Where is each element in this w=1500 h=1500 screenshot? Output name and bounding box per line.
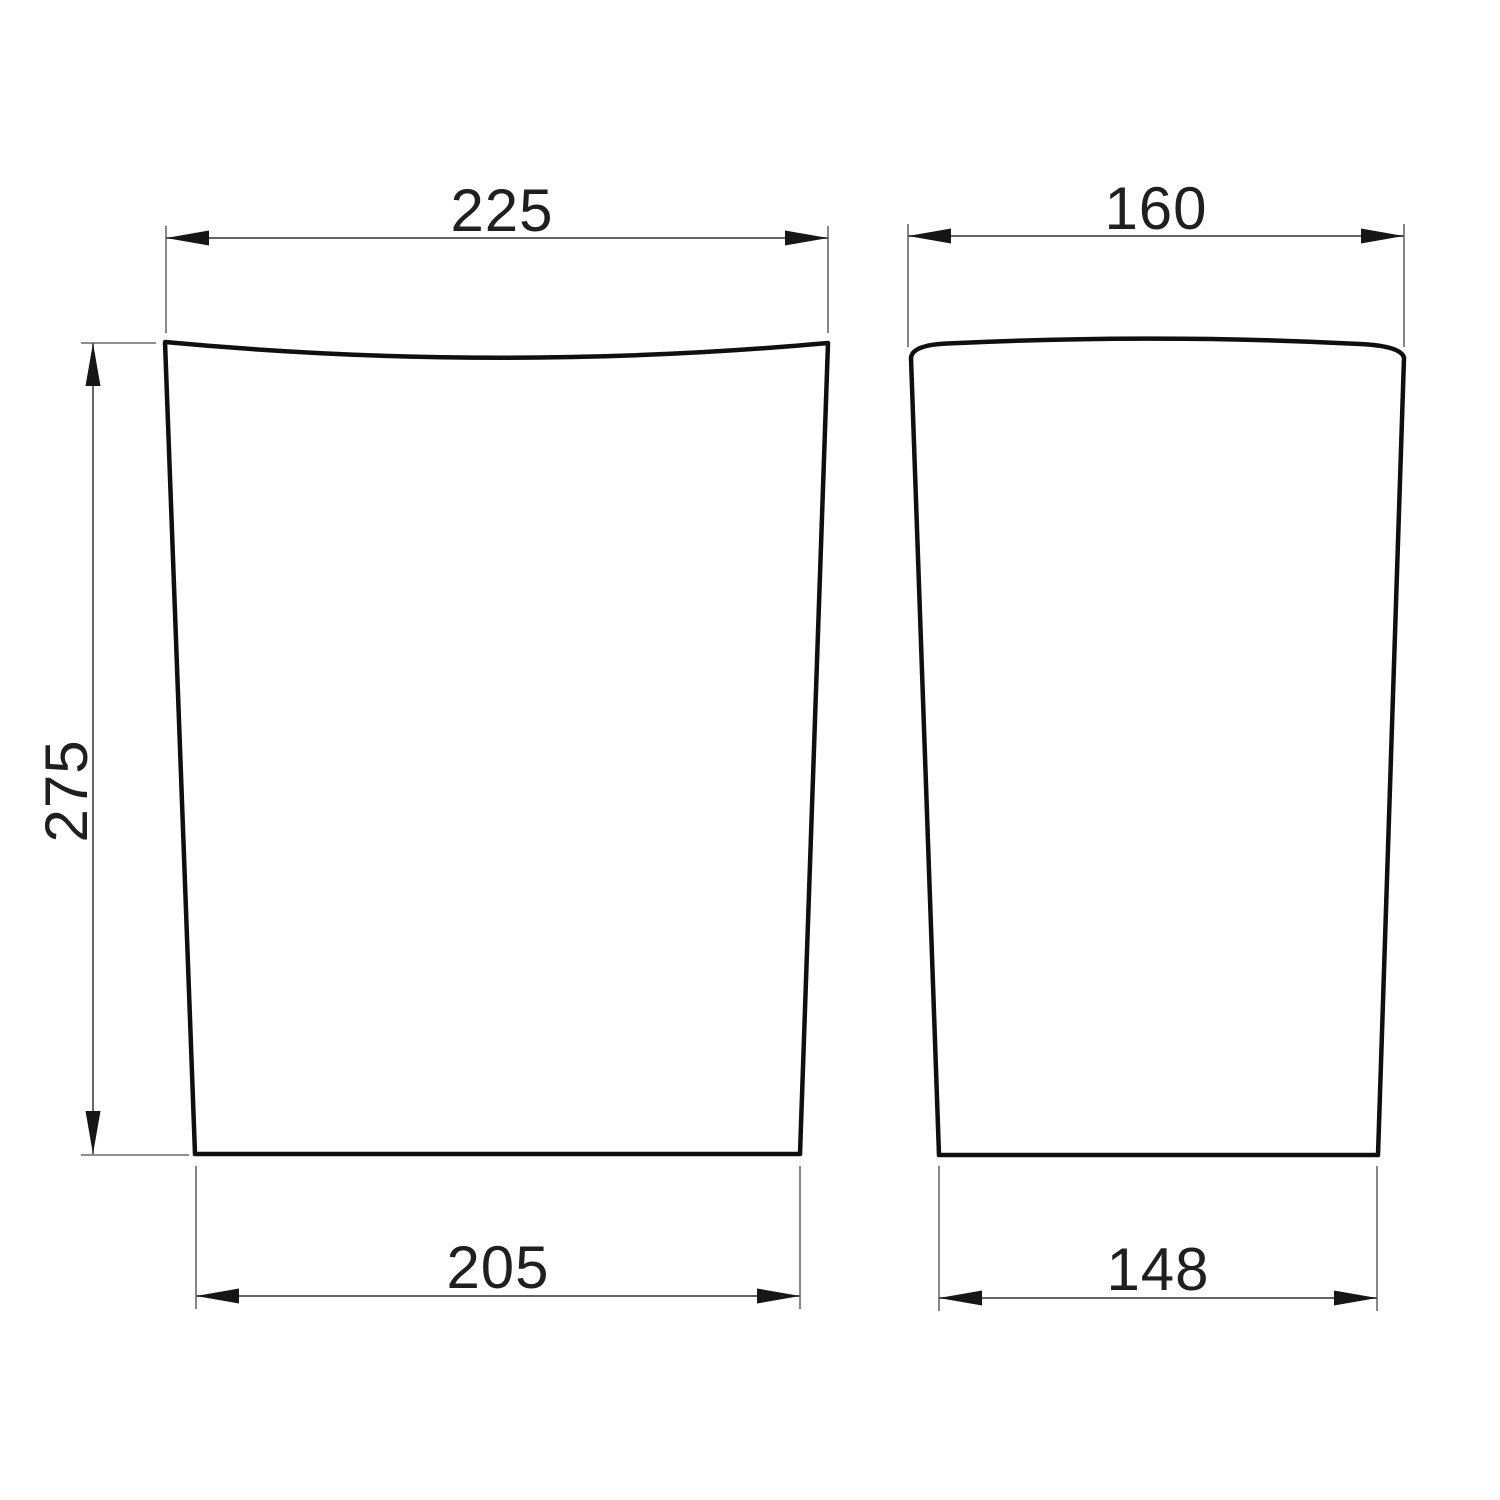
side-view-outline [911,339,1404,1155]
drawing-page: 225 160 275 205 [0,0,1500,1500]
side-top-width-value: 160 [1104,175,1207,242]
arrowhead-left [939,1291,982,1306]
side-view [911,339,1404,1155]
arrowhead-right [785,231,828,246]
arrowhead-right [757,1289,800,1304]
technical-drawing-canvas: 225 160 275 205 [0,0,1500,1500]
front-view [165,342,828,1154]
dim-front-top-width: 225 [166,177,828,333]
arrowhead-bottom [86,1111,101,1154]
dim-front-bottom-width: 205 [196,1166,800,1309]
arrowhead-left [908,229,951,244]
front-top-width-value: 225 [450,177,553,244]
arrowhead-left [166,231,209,246]
front-bottom-width-value: 205 [446,1234,549,1301]
arrowhead-left [196,1289,239,1304]
dim-side-bottom-width: 148 [939,1166,1377,1311]
arrowhead-right [1334,1291,1377,1306]
dim-front-height: 275 [33,343,189,1155]
side-bottom-width-value: 148 [1106,1236,1209,1303]
arrowhead-top [86,343,101,386]
front-view-outline [165,342,828,1154]
dim-side-top-width: 160 [908,175,1404,347]
front-height-value: 275 [33,739,100,842]
arrowhead-right [1361,229,1404,244]
